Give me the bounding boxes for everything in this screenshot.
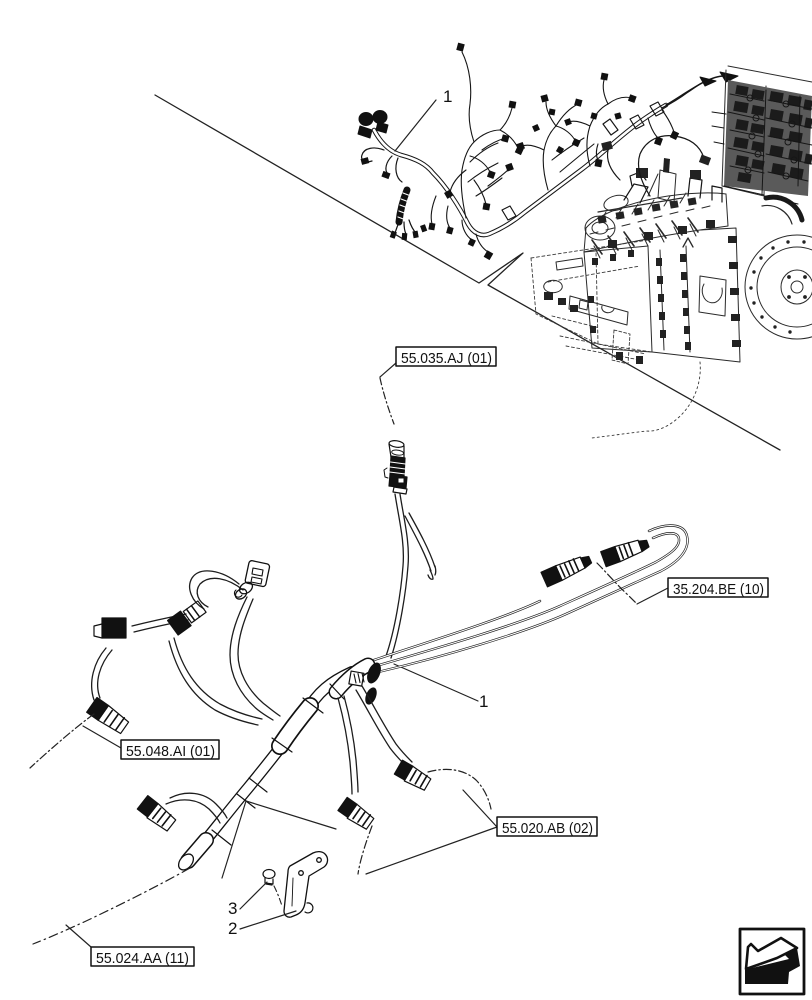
- svg-text:55.024.AA (11): 55.024.AA (11): [96, 950, 189, 967]
- svg-text:1: 1: [479, 692, 488, 711]
- svg-text:55.048.AI (01): 55.048.AI (01): [126, 743, 215, 760]
- svg-text:55.035.AJ (01): 55.035.AJ (01): [401, 350, 492, 367]
- svg-text:3: 3: [228, 899, 237, 918]
- svg-text:1: 1: [443, 87, 452, 106]
- svg-text:2: 2: [228, 919, 237, 938]
- svg-text:55.020.AB (02): 55.020.AB (02): [502, 820, 593, 837]
- svg-text:35.204.BE (10): 35.204.BE (10): [673, 581, 764, 598]
